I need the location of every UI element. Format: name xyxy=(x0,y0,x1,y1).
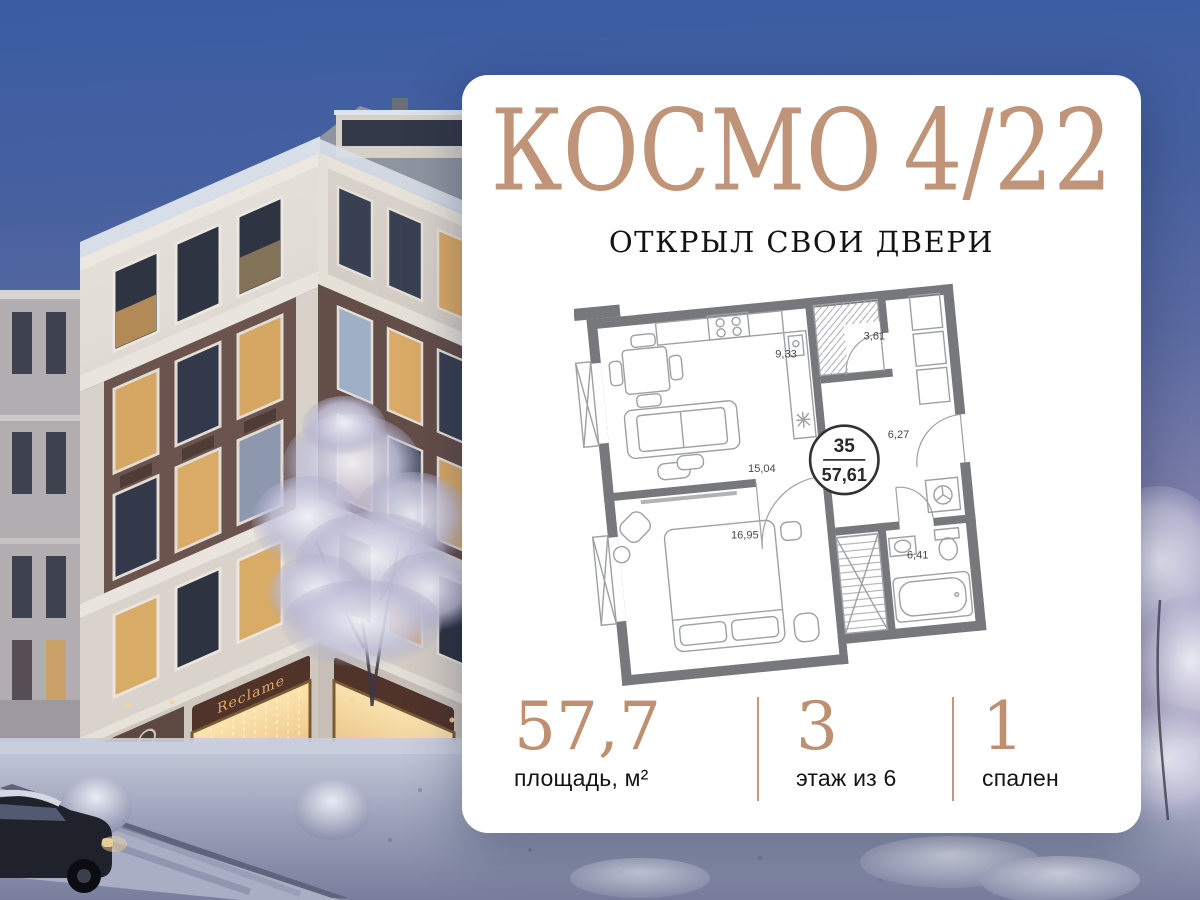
stat-bedrooms-label: спален xyxy=(982,765,1059,792)
stat-area-value: 57,7 xyxy=(514,695,661,759)
label-living-area: 15,04 xyxy=(748,463,776,475)
stat-floor: 3 этаж из 6 xyxy=(796,695,896,792)
badge-total-area: 57,61 xyxy=(822,465,867,485)
subtitle: ОТКРЫЛ СВОИ ДВЕРИ xyxy=(462,225,1141,259)
stat-floor-label: этаж из 6 xyxy=(796,765,896,792)
stat-bedrooms-value: 1 xyxy=(982,695,1059,759)
stat-area: 57,7 площадь, м² xyxy=(514,695,661,792)
label-kitchen-area: 9,33 xyxy=(775,348,797,360)
stats-divider xyxy=(757,697,759,801)
stat-area-label: площадь, м² xyxy=(514,765,661,792)
stat-bedrooms: 1 спален xyxy=(982,695,1059,792)
label-hall-area: 6,27 xyxy=(888,429,910,441)
label-bathroom-area: 6,41 xyxy=(907,549,929,561)
brand-name: КОСМО xyxy=(491,85,882,216)
floorplan: 9,33 3,61 6,27 15,04 16,95 6,41 35 57,61 xyxy=(574,279,998,691)
brand-number: 4/22 xyxy=(903,85,1112,216)
brand-logo: КОСМО4/22 xyxy=(472,92,1131,210)
stat-floor-value: 3 xyxy=(796,695,896,759)
badge-unit-number: 35 xyxy=(834,436,856,457)
neighbor-building xyxy=(0,290,82,765)
plan-walls-furniture xyxy=(574,279,988,687)
label-wardrobe-area: 3,61 xyxy=(864,330,886,342)
listing-card[interactable]: КОСМО4/22 ОТКРЫЛ СВОИ ДВЕРИ xyxy=(462,75,1141,833)
label-bedroom-area: 16,95 xyxy=(731,529,759,541)
stats-divider xyxy=(952,697,954,801)
promo-banner[interactable]: Reclame xyxy=(0,0,1200,900)
unit-badge: 35 57,61 xyxy=(810,426,878,494)
